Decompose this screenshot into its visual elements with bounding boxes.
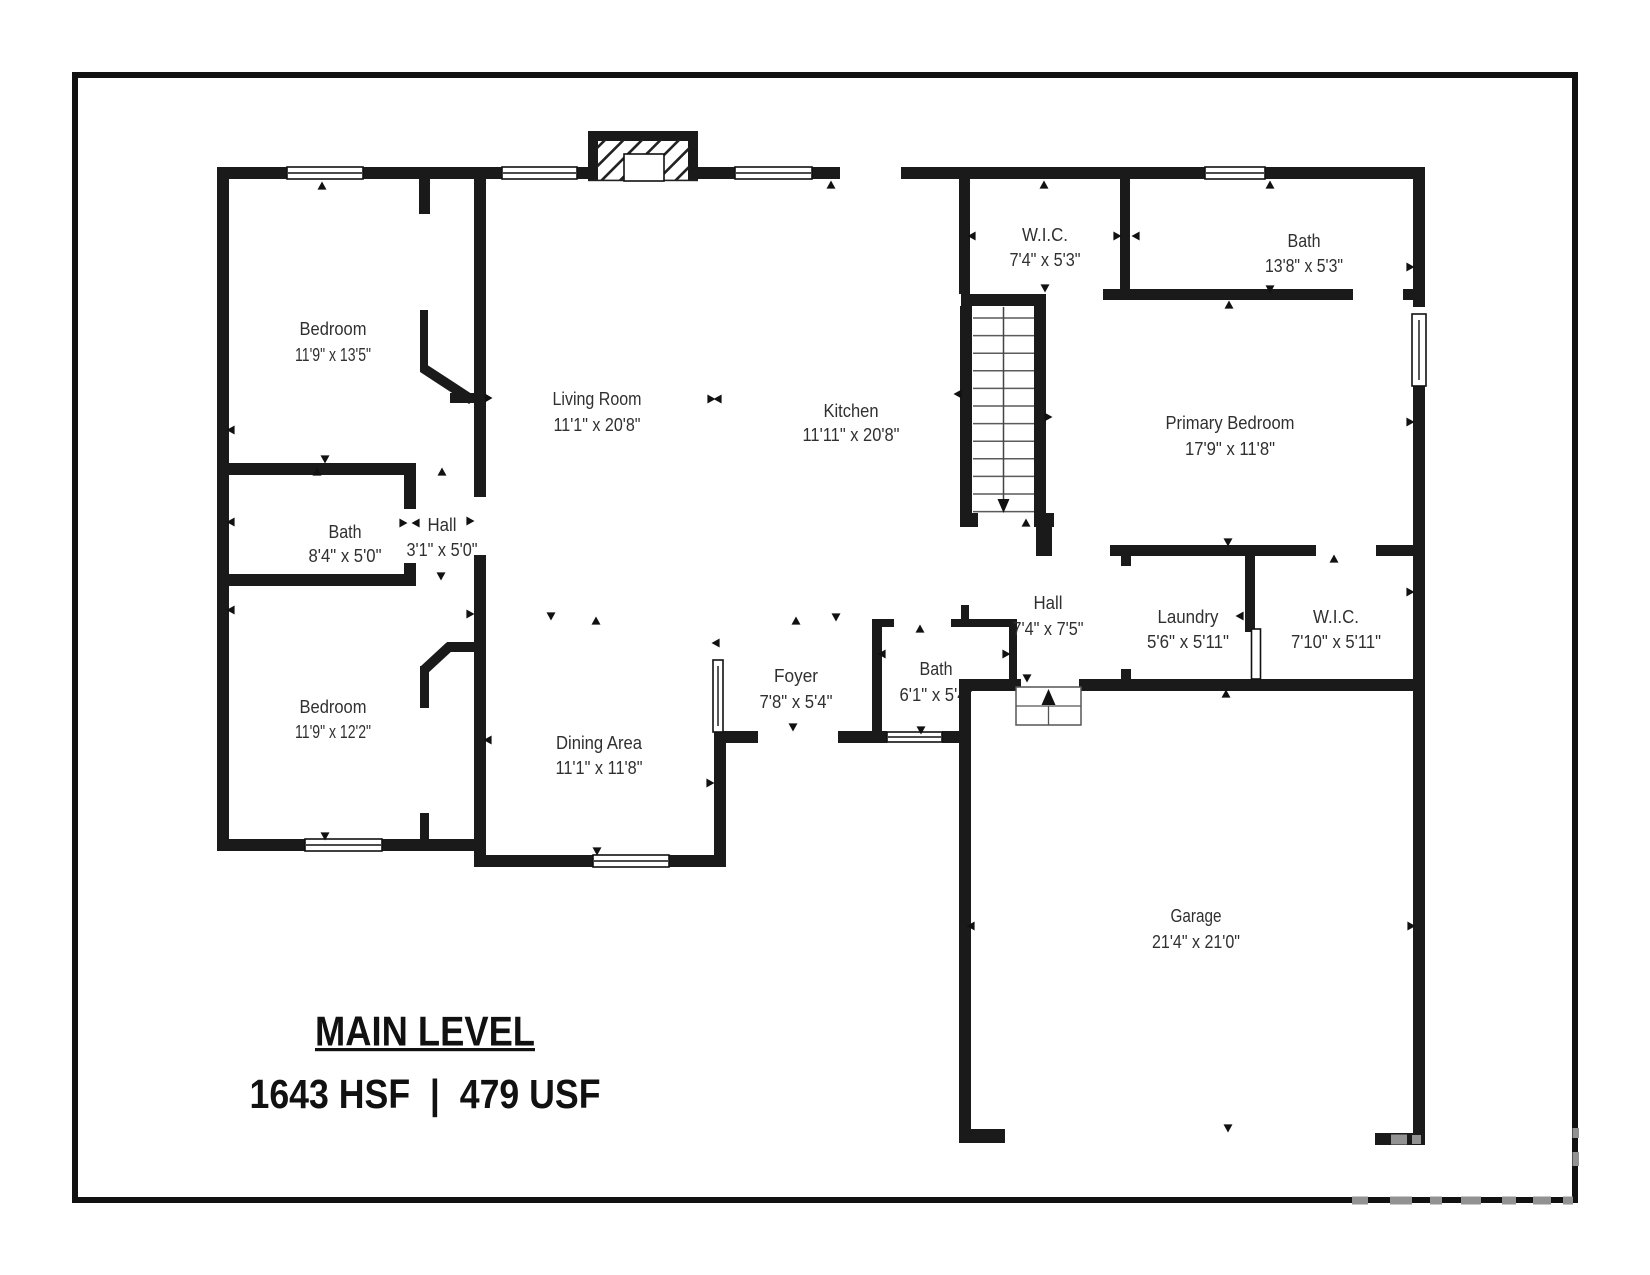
svg-text:17'9" x 11'8": 17'9" x 11'8" xyxy=(1185,438,1275,459)
svg-text:11'1" x 20'8": 11'1" x 20'8" xyxy=(554,414,641,435)
svg-text:MAIN LEVEL: MAIN LEVEL xyxy=(315,1008,535,1055)
svg-text:7'10" x 5'11": 7'10" x 5'11" xyxy=(1291,631,1381,652)
svg-text:5'6" x 5'11": 5'6" x 5'11" xyxy=(1147,631,1229,652)
svg-text:11'1" x 11'8": 11'1" x 11'8" xyxy=(556,757,643,778)
svg-text:Garage: Garage xyxy=(1171,905,1222,926)
svg-text:11'9" x 13'5": 11'9" x 13'5" xyxy=(295,344,371,365)
svg-text:Bath: Bath xyxy=(1288,230,1321,251)
svg-text:Foyer: Foyer xyxy=(774,665,818,686)
svg-text:13'8" x 5'3": 13'8" x 5'3" xyxy=(1265,255,1343,276)
svg-text:W.I.C.: W.I.C. xyxy=(1313,606,1359,627)
svg-text:7'4" x 5'3": 7'4" x 5'3" xyxy=(1010,249,1081,270)
svg-text:Primary Bedroom: Primary Bedroom xyxy=(1166,412,1295,433)
svg-text:11'11" x 20'8": 11'11" x 20'8" xyxy=(803,424,900,445)
svg-text:Bath: Bath xyxy=(920,658,953,679)
svg-text:Living Room: Living Room xyxy=(553,388,642,409)
svg-text:7'4" x 7'5": 7'4" x 7'5" xyxy=(1013,618,1084,639)
svg-text:Laundry: Laundry xyxy=(1158,606,1220,627)
svg-text:11'9" x 12'2": 11'9" x 12'2" xyxy=(295,721,371,742)
svg-text:Bedroom: Bedroom xyxy=(300,318,367,339)
svg-text:Hall: Hall xyxy=(1034,592,1063,613)
svg-text:3'1" x 5'0": 3'1" x 5'0" xyxy=(407,539,478,560)
svg-text:1643 HSF | 479 USF: 1643 HSF | 479 USF xyxy=(250,1071,601,1117)
svg-text:W.I.C.: W.I.C. xyxy=(1022,224,1068,245)
svg-text:Hall: Hall xyxy=(428,514,457,535)
svg-text:7'8" x 5'4": 7'8" x 5'4" xyxy=(760,691,833,712)
svg-text:Dining Area: Dining Area xyxy=(556,732,643,753)
svg-text:Bedroom: Bedroom xyxy=(300,696,367,717)
svg-text:Kitchen: Kitchen xyxy=(824,400,879,421)
svg-text:21'4" x 21'0": 21'4" x 21'0" xyxy=(1152,931,1240,952)
svg-text:8'4" x 5'0": 8'4" x 5'0" xyxy=(309,545,382,566)
svg-text:Bath: Bath xyxy=(329,521,362,542)
